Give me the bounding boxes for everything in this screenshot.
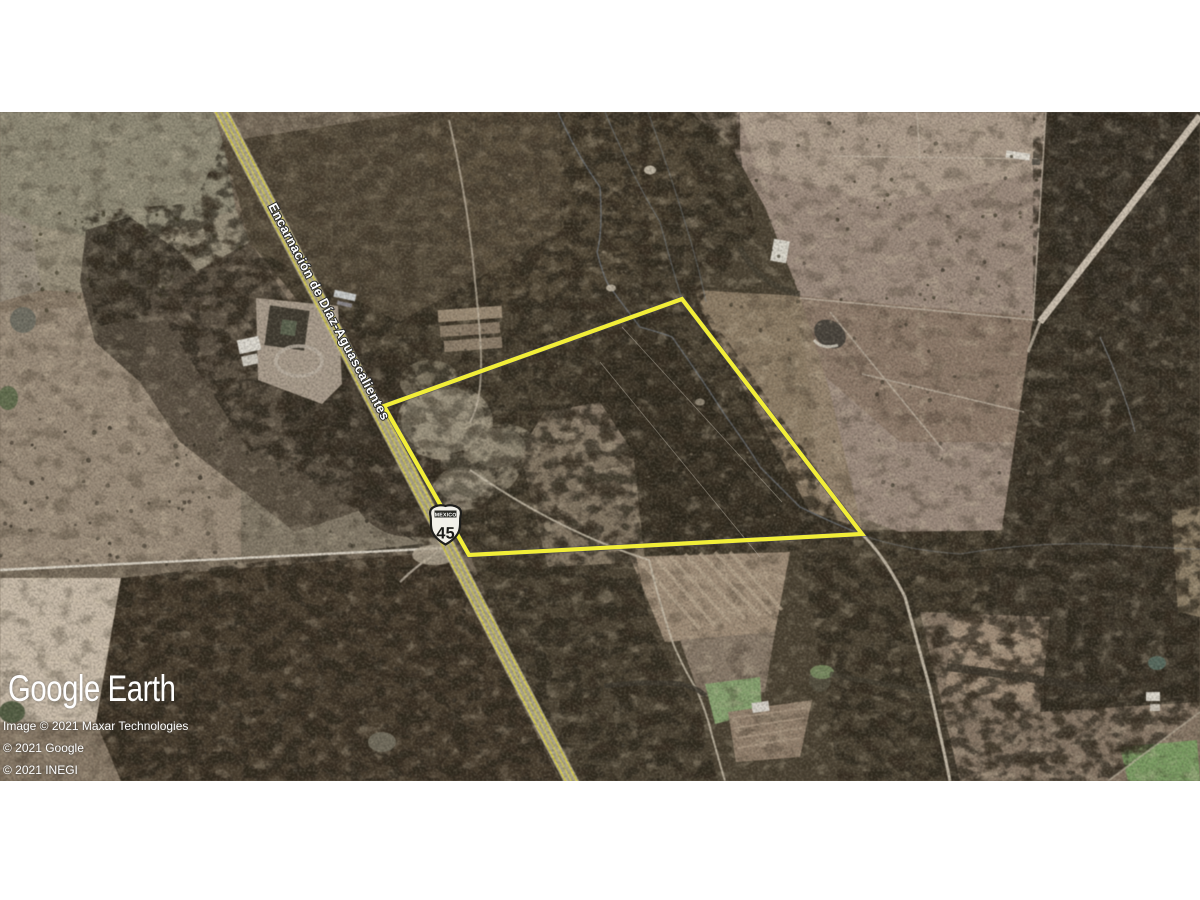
svg-text:MEXICO: MEXICO [435, 512, 457, 518]
svg-text:45: 45 [436, 524, 454, 542]
